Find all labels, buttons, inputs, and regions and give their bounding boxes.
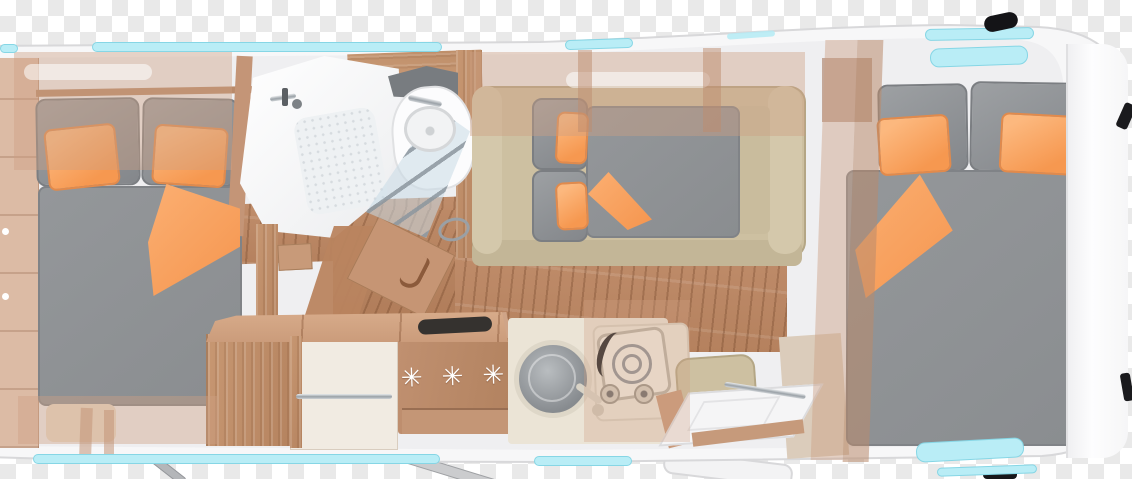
lounge-overhead-lockers: [470, 52, 805, 136]
roof-window-strip: [925, 27, 1034, 41]
shower-mixer-body: [282, 88, 288, 106]
bottom-window-strip-left: [33, 454, 440, 464]
right-bed-mattress: [846, 170, 1078, 446]
door-j-handle: [397, 251, 431, 292]
dinette-pillow: [555, 181, 589, 231]
left-window-strip: [92, 42, 442, 52]
caravan-floorplan-render: ✳ ✳ ✳: [0, 0, 1132, 479]
sink-rim-highlight: [528, 354, 576, 402]
cabinet-fin: [104, 410, 114, 456]
rear-end-cap: [1066, 44, 1128, 458]
overhead-fin: [703, 48, 721, 132]
freezer-rating-icon: ✳ ✳ ✳: [398, 360, 513, 394]
wardrobe-hanging-rail: [296, 394, 392, 399]
cabinet-knob: [2, 293, 9, 300]
bottom-window-strip-mid: [534, 456, 632, 466]
cabinet-fin: [79, 408, 93, 456]
right-bed-pillow: [876, 114, 952, 177]
wardrobe-open: [290, 336, 398, 450]
shower-head: [292, 99, 302, 109]
wardrobe-side-panel: [290, 336, 302, 448]
washbasin-bowl: [404, 106, 456, 152]
overhead-fin: [578, 50, 592, 132]
cabinet-knob: [2, 228, 9, 235]
left-window-strip-edge: [0, 44, 18, 53]
fridge-lower-drawer: [402, 408, 508, 434]
hall-locker-box: [277, 243, 312, 271]
rear-skylight-top: [930, 45, 1029, 67]
kitchen-overhead-overlay: [584, 300, 690, 442]
dinette-seat-front: [472, 240, 802, 266]
kitchen-base-cabinet: [206, 334, 292, 446]
left-overhead-shelf: [24, 64, 152, 80]
left-foot-cabinet-overlay: [18, 396, 218, 444]
